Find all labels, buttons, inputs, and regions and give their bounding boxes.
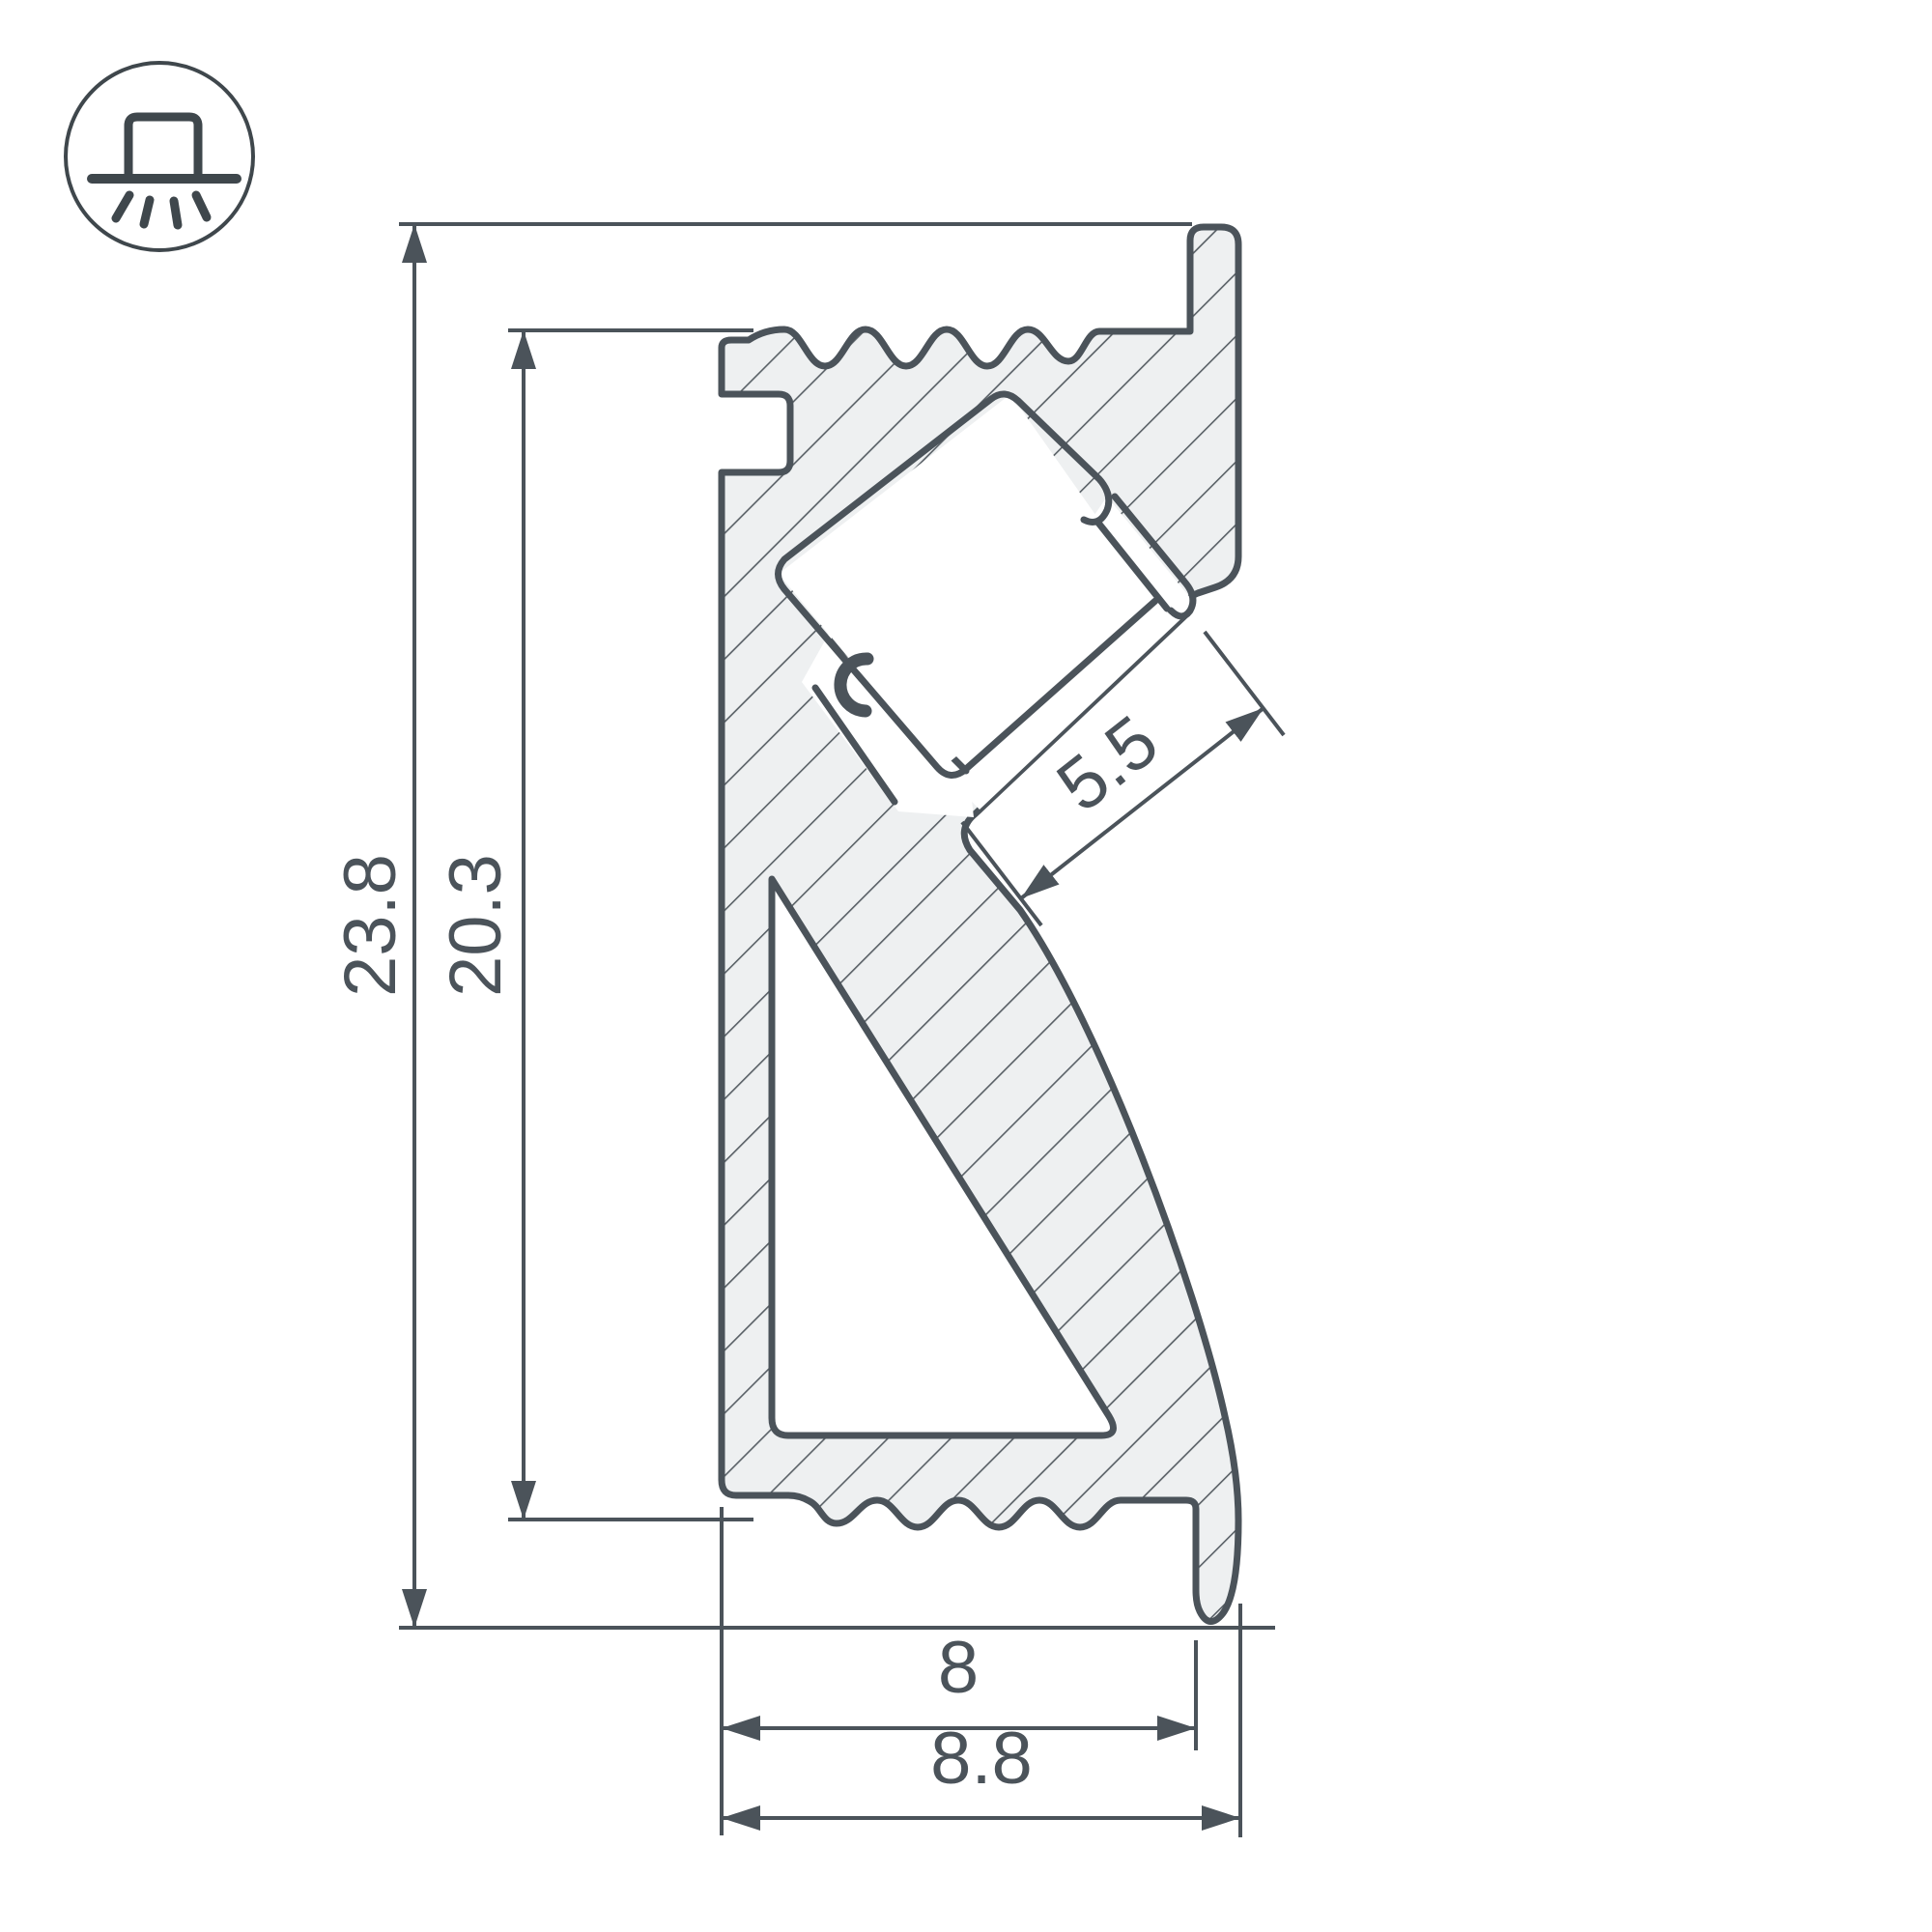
extension-line (1205, 632, 1284, 735)
icon-fixture-box (128, 117, 198, 179)
icon-circle (66, 63, 253, 250)
icon-light-ray (116, 195, 129, 218)
surface-mount-light-icon (66, 63, 253, 250)
profile-cross-section-drawing: 23.8 20.3 5.5 8 8.8 (0, 0, 1932, 1932)
base-width-label: 8 (938, 1627, 979, 1709)
overall-width-label: 8.8 (930, 1718, 1033, 1800)
icon-light-ray (196, 195, 207, 217)
overall-height-label: 23.8 (329, 854, 412, 997)
icon-light-ray (144, 200, 150, 224)
body-height-label: 20.3 (435, 854, 517, 997)
profile-body (580, 174, 1352, 1681)
icon-light-ray (174, 201, 178, 225)
dimension-body-height (508, 330, 753, 1520)
technical-drawing-page: 23.8 20.3 5.5 8 8.8 (0, 0, 1932, 1932)
